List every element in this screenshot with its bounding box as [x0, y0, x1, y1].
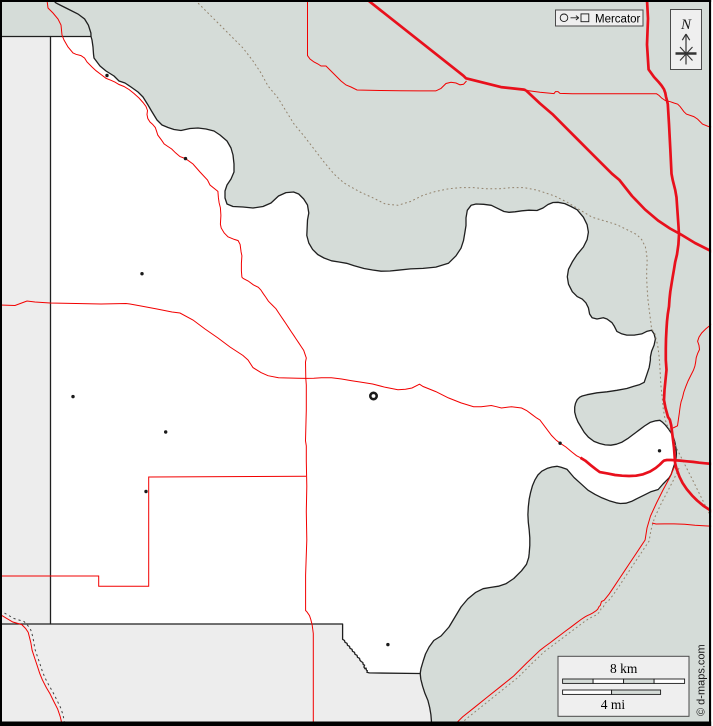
- svg-text:4 mi: 4 mi: [601, 697, 626, 712]
- svg-text:N: N: [680, 17, 692, 33]
- svg-text:Mercator: Mercator: [595, 14, 641, 26]
- svg-text:8 km: 8 km: [610, 661, 638, 676]
- svg-text:© d-maps.com: © d-maps.com: [696, 644, 708, 716]
